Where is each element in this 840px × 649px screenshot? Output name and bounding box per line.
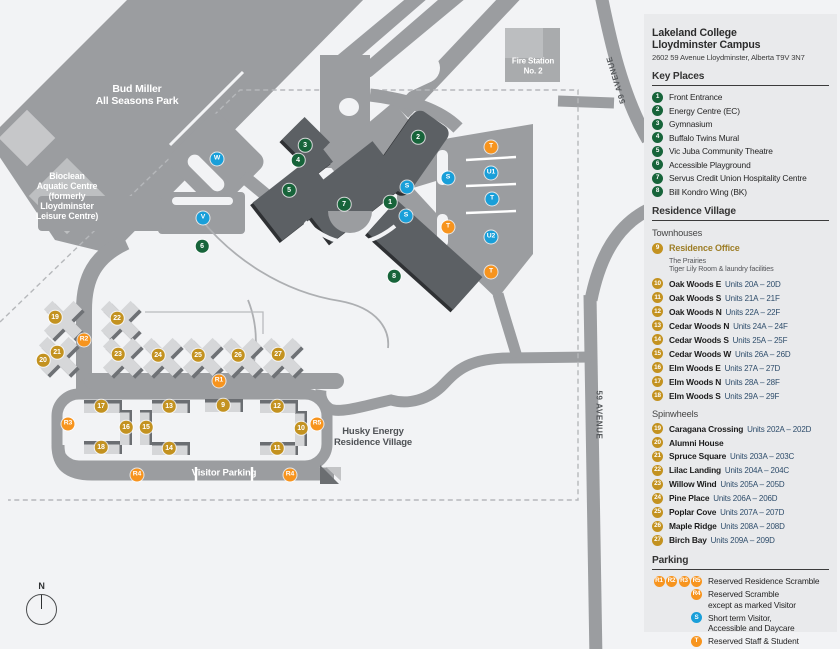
map-marker-s: S <box>401 181 414 194</box>
residence-label: Pine Place Units 206A – 206D <box>669 493 777 504</box>
residence-row: 19Caragana Crossing Units 202A – 202D <box>652 424 829 435</box>
key-place-row: 5Vic Juba Community Theatre <box>652 146 829 157</box>
map-marker-s: S <box>442 172 455 185</box>
map-marker-23: 23 <box>112 348 125 361</box>
residence-label: Elm Woods S Units 29A – 29F <box>669 391 779 402</box>
residence-units: Units 208A – 208D <box>717 522 785 531</box>
residence-village-heading: Residence Village <box>652 206 829 221</box>
map-marker-11: 11 <box>271 442 284 455</box>
residence-units: Units 24A – 24F <box>729 322 788 331</box>
residence-row: 26Maple Ridge Units 208A – 208D <box>652 521 829 532</box>
map-marker-8: 8 <box>388 270 401 283</box>
residence-units: Units 21A – 21F <box>721 294 780 303</box>
spinwheels-list: 19Caragana Crossing Units 202A – 202D20A… <box>652 424 829 547</box>
map-marker-r1: R1 <box>213 375 226 388</box>
key-places-list: 1Front Entrance2Energy Centre (EC)3Gymna… <box>652 92 829 197</box>
residence-name: Cedar Woods S <box>669 335 729 345</box>
map-marker-t: T <box>486 193 499 206</box>
map-marker-t: T <box>485 141 498 154</box>
residence-name: Oak Woods E <box>669 279 721 289</box>
residence-label: Birch Bay Units 209A – 209D <box>669 535 775 546</box>
compass: N <box>26 594 57 625</box>
residence-row: 27Birch Bay Units 209A – 209D <box>652 535 829 546</box>
parking-legend-row: R1R2R3R5Reserved Residence Scramble <box>652 576 829 587</box>
townhouses-subheading: Townhouses <box>652 228 829 238</box>
parking-label-line: Accessible and Daycare <box>708 623 795 634</box>
parking-row-label: Short term Visitor,Accessible and Daycar… <box>708 613 795 634</box>
map-marker-u2: U2 <box>485 231 498 244</box>
legend-badge-r5: R5 <box>691 576 702 587</box>
residence-units: Units 202A – 202D <box>743 425 811 434</box>
residence-row: 10Oak Woods E Units 20A – 20D <box>652 279 829 290</box>
legend-badge-5: 5 <box>652 146 663 157</box>
map-marker-t: T <box>485 266 498 279</box>
legend-badge-t: T <box>691 636 702 647</box>
map-marker-18: 18 <box>95 441 108 454</box>
residence-label: Oak Woods S Units 21A – 21F <box>669 293 780 304</box>
legend-badge-25: 25 <box>652 507 663 518</box>
residence-name: Oak Woods N <box>669 307 722 317</box>
key-place-row: 6Accessible Playground <box>652 160 829 171</box>
key-place-label: Bill Kondro Wing (BK) <box>669 187 747 197</box>
residence-units: Units 204A – 204C <box>721 466 789 475</box>
legend-badge-s: S <box>691 612 702 623</box>
legend-badge-2: 2 <box>652 105 663 116</box>
key-place-row: 4Buffalo Twins Mural <box>652 133 829 144</box>
college-address: 2602 59 Avenue Lloydminster, Alberta T9V… <box>652 53 829 62</box>
parking-badge-column: T <box>652 636 702 647</box>
parking-legend-row: SShort term Visitor,Accessible and Dayca… <box>652 613 829 634</box>
key-place-label: Servus Credit Union Hospitality Centre <box>669 173 807 183</box>
residence-name: Lilac Landing <box>669 465 721 475</box>
residence-label: Oak Woods N Units 22A – 22F <box>669 307 780 318</box>
residence-label: Oak Woods E Units 20A – 20D <box>669 279 781 290</box>
residence-office-name: Residence Office <box>669 243 740 253</box>
key-place-row: 8Bill Kondro Wing (BK) <box>652 187 829 198</box>
legend-badge-18: 18 <box>652 390 663 401</box>
parking-label-line: Reserved Residence Scramble <box>708 576 819 587</box>
legend-badge-22: 22 <box>652 465 663 476</box>
legend-badge-23: 23 <box>652 479 663 490</box>
legend-badge-6: 6 <box>652 159 663 170</box>
residence-name: Pine Place <box>669 493 709 503</box>
legend-badge-20: 20 <box>652 437 663 448</box>
residence-row: 22Lilac Landing Units 204A – 204C <box>652 465 829 476</box>
residence-office-badge: 9 <box>652 243 663 254</box>
residence-units: Units 27A – 27D <box>721 364 780 373</box>
map-marker-19: 19 <box>49 311 62 324</box>
residence-row: 12Oak Woods N Units 22A – 22F <box>652 307 829 318</box>
parking-label-line: except as marked Visitor <box>708 600 796 611</box>
legend-badge-12: 12 <box>652 306 663 317</box>
residence-row: 23Willow Wind Units 205A – 205D <box>652 479 829 490</box>
parking-badge-column: R1R2R3R5 <box>652 576 702 587</box>
residence-units: Units 29A – 29F <box>721 392 780 401</box>
residence-name: Oak Woods S <box>669 293 721 303</box>
residence-label: Lilac Landing Units 204A – 204C <box>669 465 789 476</box>
legend-badge-13: 13 <box>652 320 663 331</box>
map-marker-25: 25 <box>192 349 205 362</box>
map-marker-16: 16 <box>120 421 133 434</box>
residence-label: Cedar Woods N Units 24A – 24F <box>669 321 788 332</box>
map-marker-1: 1 <box>384 196 397 209</box>
key-place-row: 3Gymnasium <box>652 119 829 130</box>
legend-badge-1: 1 <box>652 92 663 103</box>
parking-badge-column: S <box>652 613 702 624</box>
parking-row-label: Reserved Residence Scramble <box>708 576 819 587</box>
map-marker-v: V <box>197 212 210 225</box>
parking-badge-column: R4 <box>652 589 702 600</box>
college-title-line2: Lloydminster Campus <box>652 39 829 51</box>
map-marker-9: 9 <box>217 399 230 412</box>
residence-label: Alumni House <box>669 438 724 448</box>
compass-north-label: N <box>38 581 44 591</box>
residence-name: Birch Bay <box>669 535 707 545</box>
legend-badge-16: 16 <box>652 362 663 373</box>
map-marker-5: 5 <box>283 184 296 197</box>
parking-row-label: Reserved Staff & Student <box>708 636 799 647</box>
residence-name: Elm Woods E <box>669 363 721 373</box>
residence-label: Elm Woods E Units 27A – 27D <box>669 363 780 374</box>
residence-label: Elm Woods N Units 28A – 28F <box>669 377 780 388</box>
key-place-label: Front Entrance <box>669 92 722 102</box>
map-marker-r4: R4 <box>284 469 297 482</box>
map-marker-4: 4 <box>292 154 305 167</box>
legend-badge-26: 26 <box>652 521 663 532</box>
residence-row: 17Elm Woods N Units 28A – 28F <box>652 377 829 388</box>
residence-units: Units 25A – 25F <box>729 336 788 345</box>
map-marker-27: 27 <box>272 348 285 361</box>
residence-row: 25Poplar Cove Units 207A – 207D <box>652 507 829 518</box>
map-marker-r2: R2 <box>78 334 91 347</box>
key-place-label: Energy Centre (EC) <box>669 106 740 116</box>
residence-row: 21Spruce Square Units 203A – 203C <box>652 451 829 462</box>
residence-row: 13Cedar Woods N Units 24A – 24F <box>652 321 829 332</box>
parking-heading: Parking <box>652 555 829 570</box>
residence-row: 15Cedar Woods W Units 26A – 26D <box>652 349 829 360</box>
compass-needle-icon <box>41 595 43 609</box>
residence-units: Units 22A – 22F <box>722 308 781 317</box>
legend-badge-r1: R1 <box>654 576 665 587</box>
parking-label-line: Reserved Staff & Student <box>708 636 799 647</box>
townhouses-list: 10Oak Woods E Units 20A – 20D11Oak Woods… <box>652 279 829 402</box>
key-place-label: Gymnasium <box>669 119 712 129</box>
residence-row: 14Cedar Woods S Units 25A – 25F <box>652 335 829 346</box>
residence-units: Units 20A – 20D <box>721 280 780 289</box>
parking-legend-row: R4Reserved Scrambleexcept as marked Visi… <box>652 589 829 610</box>
legend-badge-27: 27 <box>652 535 663 546</box>
legend-badge-14: 14 <box>652 334 663 345</box>
residence-label: Cedar Woods W Units 26A – 26D <box>669 349 791 360</box>
map-marker-u1: U1 <box>485 167 498 180</box>
map-marker-20: 20 <box>37 354 50 367</box>
map-marker-26: 26 <box>232 349 245 362</box>
map-marker-24: 24 <box>152 349 165 362</box>
residence-name: Cedar Woods W <box>669 349 731 359</box>
legend-badge-24: 24 <box>652 493 663 504</box>
fire-station-shape <box>505 28 614 103</box>
residence-units: Units 205A – 205D <box>717 480 785 489</box>
residence-row: 11Oak Woods S Units 21A – 21F <box>652 293 829 304</box>
legend-badge-7: 7 <box>652 173 663 184</box>
map-marker-r5: R5 <box>311 418 324 431</box>
key-places-heading: Key Places <box>652 71 829 86</box>
parking-label-line: Short term Visitor, <box>708 613 795 624</box>
legend-badge-10: 10 <box>652 278 663 289</box>
residence-units: Units 28A – 28F <box>721 378 780 387</box>
residence-label: Spruce Square Units 203A – 203C <box>669 451 794 462</box>
map-marker-2: 2 <box>412 131 425 144</box>
key-place-row: 2Energy Centre (EC) <box>652 106 829 117</box>
residence-name: Spruce Square <box>669 451 726 461</box>
map-marker-s: S <box>400 210 413 223</box>
legend-badge-r2: R2 <box>666 576 677 587</box>
map-marker-6: 6 <box>196 240 209 253</box>
parking-label-line: Reserved Scramble <box>708 589 796 600</box>
residence-row: 18Elm Woods S Units 29A – 29F <box>652 391 829 402</box>
residence-label: Poplar Cove Units 207A – 207D <box>669 507 784 518</box>
key-place-row: 7Servus Credit Union Hospitality Centre <box>652 173 829 184</box>
key-place-label: Buffalo Twins Mural <box>669 133 739 143</box>
map-marker-r4: R4 <box>131 469 144 482</box>
legend-badge-3: 3 <box>652 119 663 130</box>
legend-badge-11: 11 <box>652 292 663 303</box>
residence-name: Maple Ridge <box>669 521 717 531</box>
residence-label: Cedar Woods S Units 25A – 25F <box>669 335 787 346</box>
parking-row-label: Reserved Scrambleexcept as marked Visito… <box>708 589 796 610</box>
residence-row: 20Alumni House <box>652 438 829 449</box>
legend-badge-15: 15 <box>652 348 663 359</box>
residence-row: 24Pine Place Units 206A – 206D <box>652 493 829 504</box>
legend-badge-r4: R4 <box>691 589 702 600</box>
campus-map-page: Bud Miller All Seasons Park Bioclean Aqu… <box>0 0 840 649</box>
map-marker-13: 13 <box>163 400 176 413</box>
key-place-label: Vic Juba Community Theatre <box>669 146 773 156</box>
map-marker-22: 22 <box>111 312 124 325</box>
map-marker-7: 7 <box>338 198 351 211</box>
residence-units: Units 209A – 209D <box>707 536 775 545</box>
parking-legend-row: TReserved Staff & Student <box>652 636 829 647</box>
residence-name: Willow Wind <box>669 479 717 489</box>
college-title-line1: Lakeland College <box>652 27 829 39</box>
legend-badge-8: 8 <box>652 186 663 197</box>
residence-name: Cedar Woods N <box>669 321 729 331</box>
map-marker-15: 15 <box>140 421 153 434</box>
legend-badge-19: 19 <box>652 423 663 434</box>
office-subline-2: Tiger Lily Room & laundry facilities <box>669 265 829 274</box>
map-marker-3: 3 <box>299 139 312 152</box>
map-marker-w: W <box>211 153 224 166</box>
spinwheels-subheading: Spinwheels <box>652 409 829 419</box>
map-marker-21: 21 <box>51 346 64 359</box>
residence-name: Elm Woods S <box>669 391 721 401</box>
map-marker-17: 17 <box>95 400 108 413</box>
legend-badge-r3: R3 <box>679 576 690 587</box>
residence-units: Units 203A – 203C <box>726 452 794 461</box>
residence-label: Willow Wind Units 205A – 205D <box>669 479 785 490</box>
residence-name: Caragana Crossing <box>669 424 743 434</box>
residence-units: Units 207A – 207D <box>716 508 784 517</box>
legend-badge-4: 4 <box>652 132 663 143</box>
map-marker-12: 12 <box>271 400 284 413</box>
residence-name: Alumni House <box>669 438 724 448</box>
residence-office-row: 9 Residence Office <box>652 243 829 254</box>
legend-badge-21: 21 <box>652 451 663 462</box>
legend-panel: Lakeland College Lloydminster Campus 260… <box>644 14 837 632</box>
residence-units: Units 26A – 26D <box>731 350 790 359</box>
key-place-row: 1Front Entrance <box>652 92 829 103</box>
map-marker-14: 14 <box>163 442 176 455</box>
parking-legend-list: R1R2R3R5Reserved Residence ScrambleR4Res… <box>652 576 829 649</box>
residence-name: Poplar Cove <box>669 507 716 517</box>
map-marker-10: 10 <box>295 422 308 435</box>
residence-name: Elm Woods N <box>669 377 721 387</box>
residence-label: Caragana Crossing Units 202A – 202D <box>669 424 811 435</box>
residence-office-details: The Prairies Tiger Lily Room & laundry f… <box>669 257 829 274</box>
residence-row: 16Elm Woods E Units 27A – 27D <box>652 363 829 374</box>
key-place-label: Accessible Playground <box>669 160 751 170</box>
map-marker-t: T <box>442 221 455 234</box>
map-marker-r3: R3 <box>62 418 75 431</box>
residence-units: Units 206A – 206D <box>709 494 777 503</box>
residence-label: Maple Ridge Units 208A – 208D <box>669 521 785 532</box>
legend-badge-17: 17 <box>652 376 663 387</box>
